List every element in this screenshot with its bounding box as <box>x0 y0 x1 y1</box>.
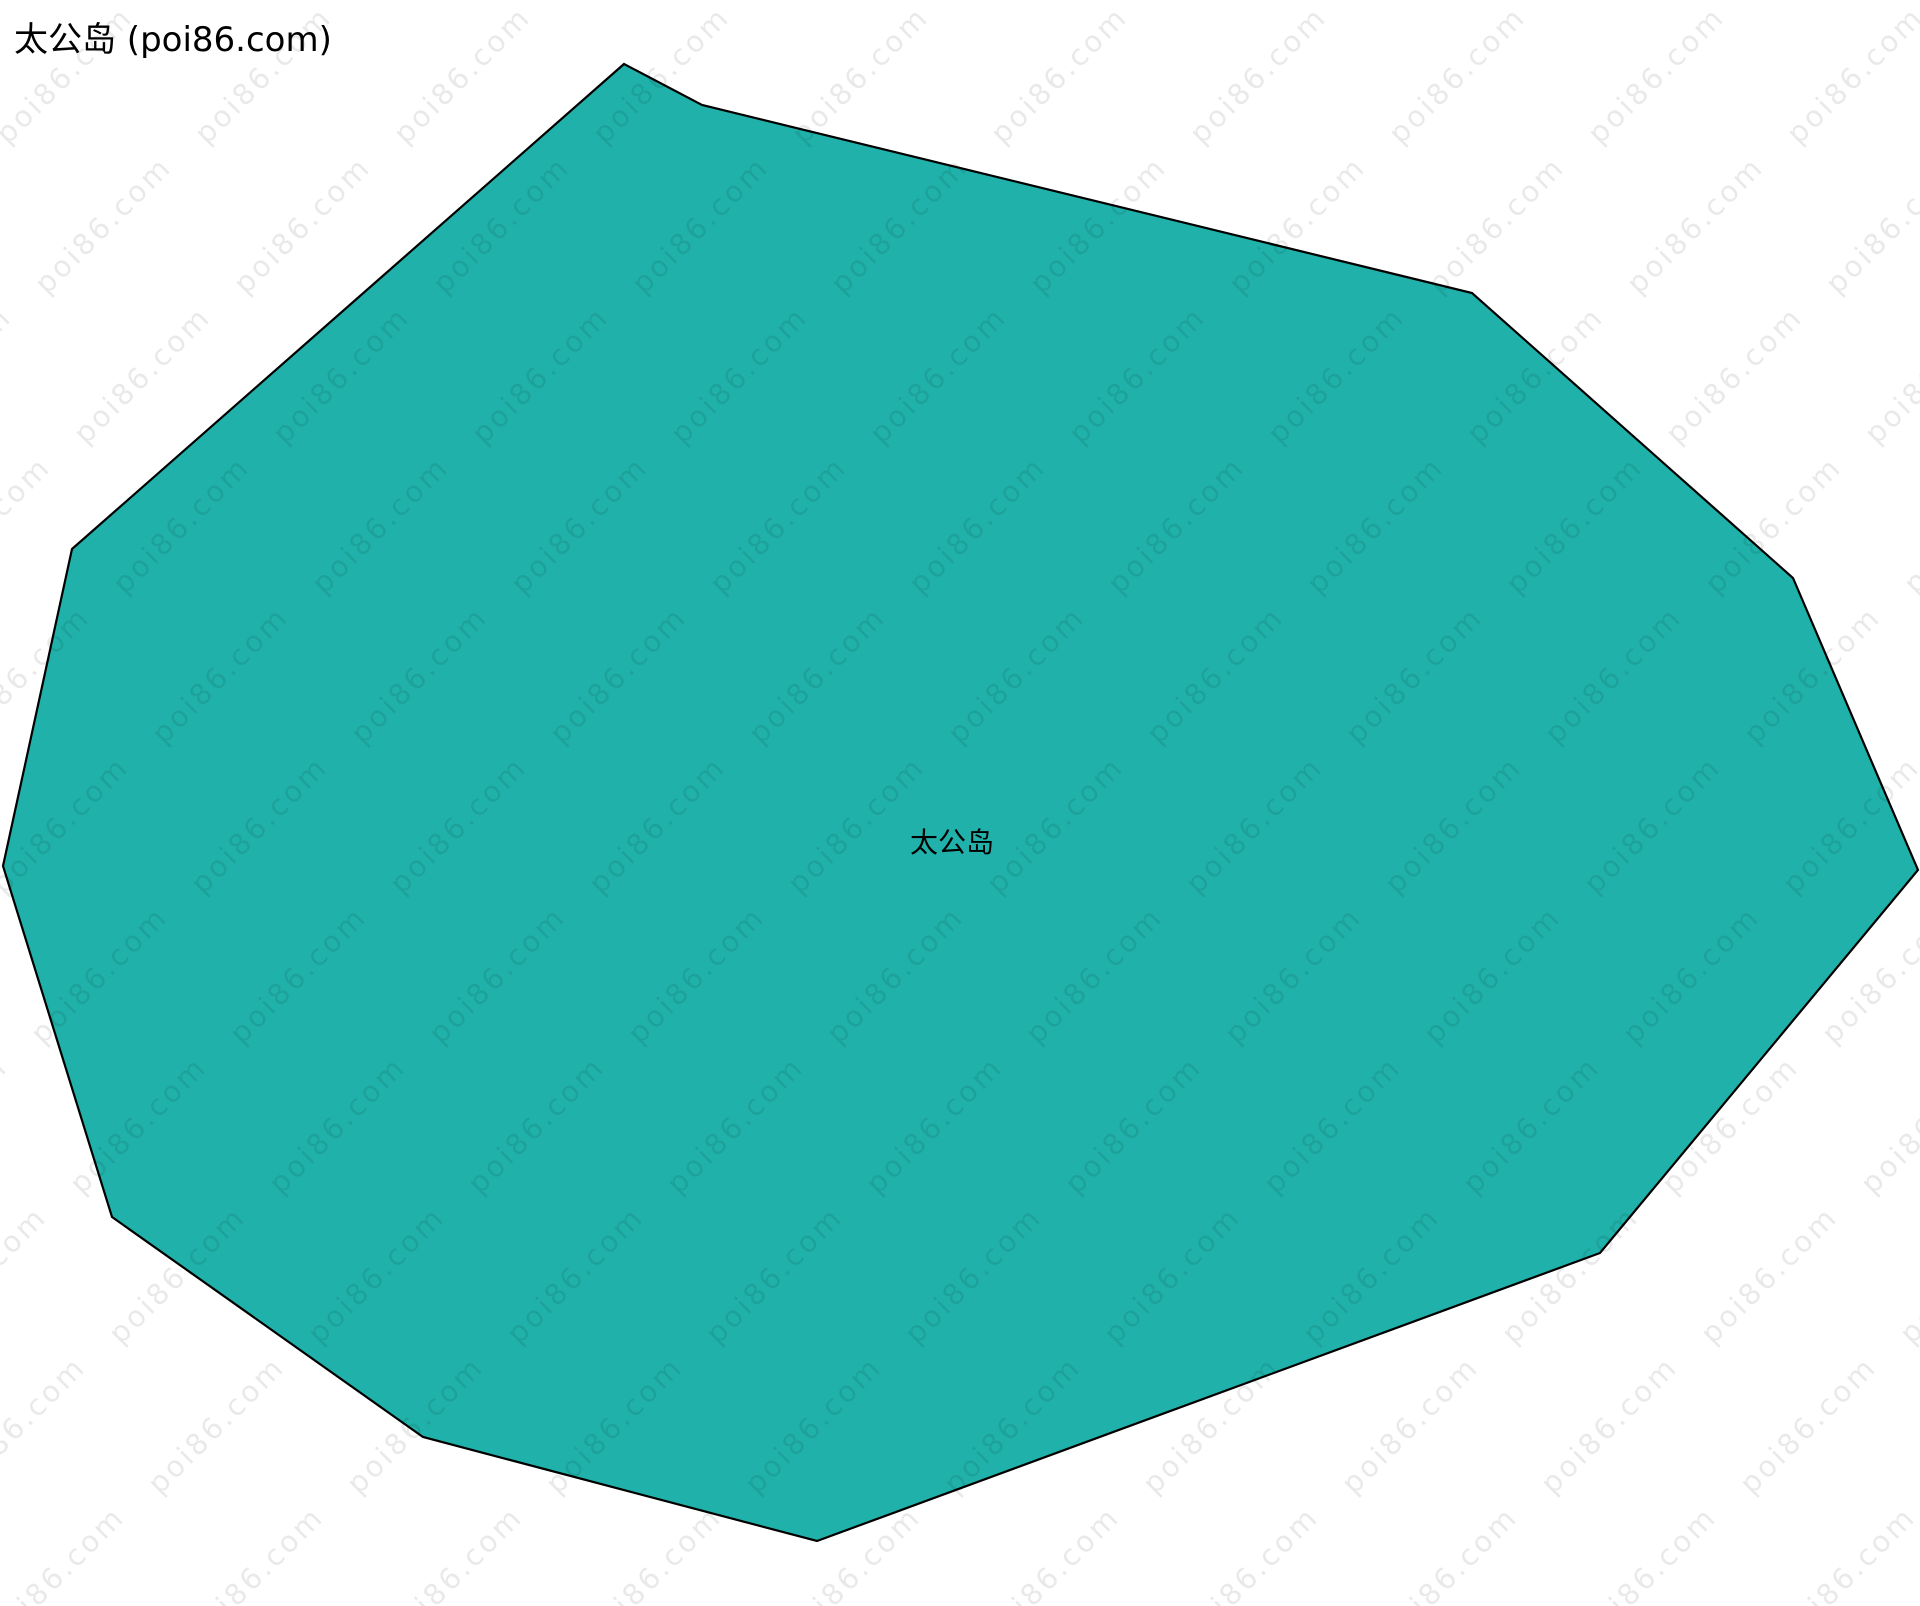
island-label: 太公岛 <box>910 821 994 861</box>
map-stage: poi86.compoi86.compoi86.compoi86.compoi8… <box>0 0 1920 1606</box>
island-map-svg <box>0 0 1920 1606</box>
island-polygon <box>3 64 1918 1541</box>
page-title: 太公岛 (poi86.com) <box>14 12 332 61</box>
